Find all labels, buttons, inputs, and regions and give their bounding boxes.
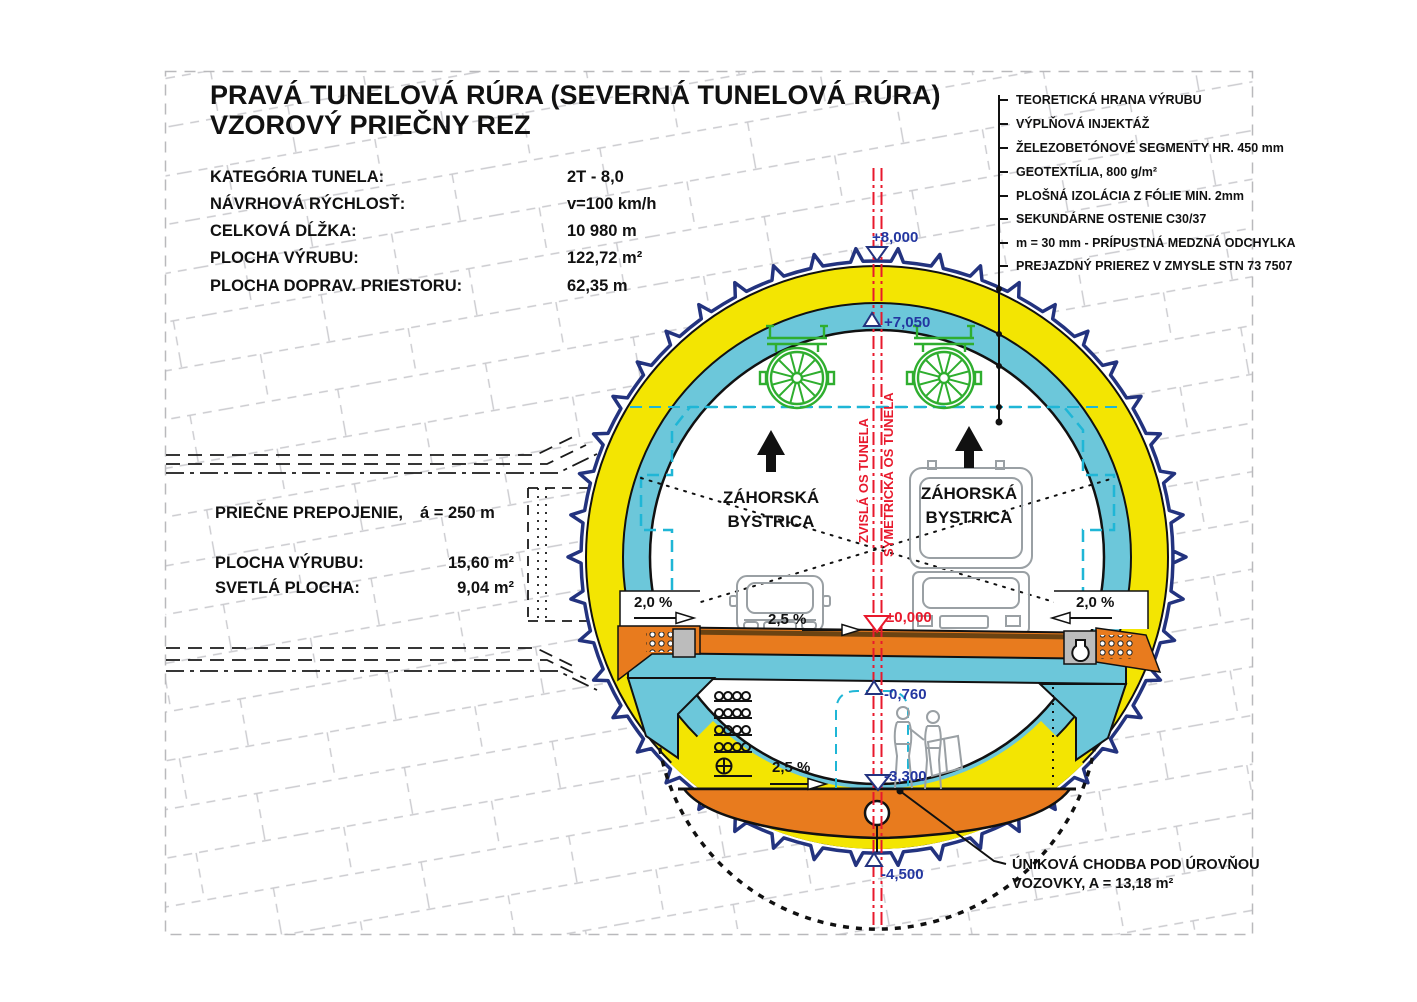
cross-passage-spacing: á = 250 m bbox=[420, 504, 495, 522]
param-value: v=100 km/h bbox=[567, 195, 656, 213]
slope-roadway: 2,5 % bbox=[768, 611, 806, 628]
level-gallery-ceiling: -0,760 bbox=[884, 686, 927, 703]
tunnel-cross-section-drawing: ZÁHORSKÁ BYSTRICA ZÁHORSKÁ BYSTRICA bbox=[0, 0, 1417, 1002]
level-lining-top: +7,050 bbox=[884, 314, 930, 331]
cross-passage-value: 15,60 m² bbox=[448, 554, 515, 572]
param-label: PLOCHA DOPRAV. PRIESTORU: bbox=[210, 277, 462, 295]
legend-item: PLOŠNÁ IZOLÁCIA Z FÓLIE MIN. 2mm bbox=[1016, 188, 1244, 203]
param-value: 2T - 8,0 bbox=[567, 168, 624, 186]
param-label: KATEGÓRIA TUNELA: bbox=[210, 167, 384, 186]
direction-left-line2: BYSTRICA bbox=[728, 512, 815, 531]
level-invert-bottom: -4,500 bbox=[881, 866, 924, 883]
param-value: 62,35 m bbox=[567, 277, 628, 295]
legend-item: m = 30 mm - PRÍPUSTNÁ MEDZNÁ ODCHYLKA bbox=[1016, 235, 1296, 250]
drawing-title-line1: PRAVÁ TUNELOVÁ RÚRA (SEVERNÁ TUNELOVÁ RÚ… bbox=[210, 79, 941, 110]
legend-item: VÝPLŇOVÁ INJEKTÁŽ bbox=[1016, 116, 1150, 131]
direction-left-line1: ZÁHORSKÁ bbox=[723, 488, 819, 507]
direction-right-line2: BYSTRICA bbox=[926, 508, 1013, 527]
legend-item: TEORETICKÁ HRANA VÝRUBU bbox=[1016, 92, 1202, 107]
level-crown: +8,000 bbox=[872, 229, 918, 246]
legend-item: ŽELEZOBETÓNOVÉ SEGMENTY HR. 450 mm bbox=[1016, 140, 1284, 155]
param-label: NÁVRHOVÁ RÝCHLOSŤ: bbox=[210, 194, 405, 213]
escape-note-line2: VOZOVKY, A = 13,18 m² bbox=[1012, 876, 1173, 892]
param-value: 10 980 m bbox=[567, 222, 637, 240]
direction-right-line1: ZÁHORSKÁ bbox=[921, 484, 1017, 503]
level-gallery-floor: -3,300 bbox=[884, 768, 927, 785]
level-road: ±0,000 bbox=[886, 609, 932, 626]
left-curb-stone bbox=[673, 629, 695, 657]
param-label: PLOCHA VÝRUBU: bbox=[210, 248, 359, 267]
slope-edge-left: 2,0 % bbox=[634, 594, 672, 611]
cross-passage-heading: PRIEČNE PREPOJENIE, bbox=[215, 503, 403, 522]
cross-passage-label: SVETLÁ PLOCHA: bbox=[215, 578, 360, 597]
cross-passage-label: PLOCHA VÝRUBU: bbox=[215, 553, 364, 572]
cross-passage-value: 9,04 m² bbox=[457, 579, 514, 597]
legend-item: GEOTEXTÍLIA, 800 g/m² bbox=[1016, 164, 1157, 179]
slope-gallery: 2,5 % bbox=[772, 759, 810, 776]
param-value: 122,72 m² bbox=[567, 249, 643, 267]
param-label: CELKOVÁ DĹŽKA: bbox=[210, 221, 357, 240]
invert-drain-pipe bbox=[865, 801, 889, 825]
axis-label-symmetry: SYMETRICKÁ OS TUNELA bbox=[881, 392, 896, 557]
drawing-title-line2: VZOROVÝ PRIEČNY REZ bbox=[210, 109, 531, 140]
axis-label-vertical: ZVISLÁ OS TUNELA bbox=[856, 417, 871, 543]
slope-edge-right: 2,0 % bbox=[1076, 594, 1114, 611]
escape-note-line1: ÚNIKOVÁ CHODBA POD ÚROVŇOU bbox=[1012, 855, 1260, 873]
legend-item: SEKUNDÁRNE OSTENIE C30/37 bbox=[1016, 211, 1206, 226]
legend-item: PREJAZDNÝ PRIEREZ V ZMYSLE STN 73 7507 bbox=[1016, 258, 1293, 273]
